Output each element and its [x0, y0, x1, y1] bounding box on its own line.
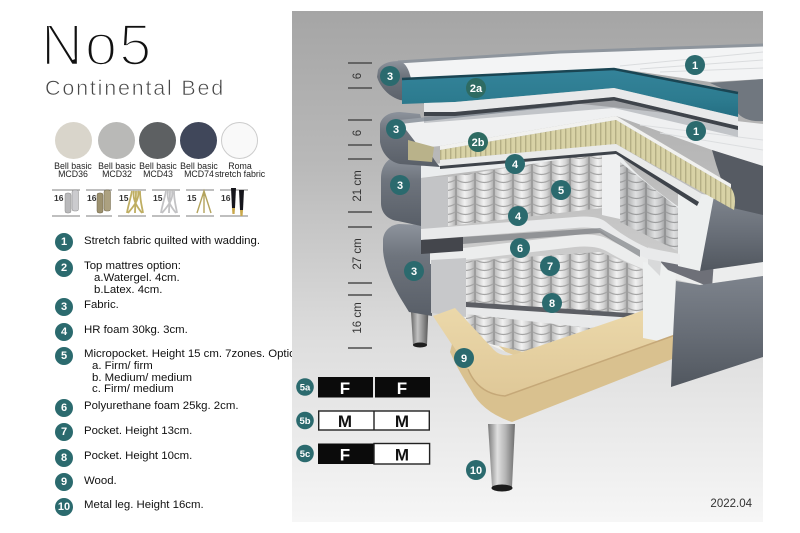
svg-text:3: 3 [411, 266, 417, 278]
svg-text:9: 9 [461, 353, 467, 365]
svg-text:5b: 5b [299, 416, 310, 427]
svg-text:5: 5 [558, 185, 564, 197]
svg-text:3: 3 [387, 71, 393, 83]
svg-text:3: 3 [397, 180, 403, 192]
svg-text:7: 7 [547, 261, 553, 273]
svg-text:F: F [340, 379, 350, 398]
svg-text:5c: 5c [300, 449, 311, 460]
svg-text:8: 8 [549, 298, 555, 310]
svg-text:4: 4 [512, 159, 519, 171]
svg-text:F: F [397, 379, 407, 398]
svg-text:6: 6 [352, 130, 364, 136]
svg-text:F: F [340, 446, 350, 465]
svg-text:M: M [395, 446, 409, 465]
svg-text:M: M [395, 412, 409, 431]
svg-text:4: 4 [515, 211, 522, 223]
svg-text:1: 1 [692, 60, 698, 72]
svg-text:3: 3 [393, 124, 399, 136]
svg-text:27 cm: 27 cm [352, 238, 364, 269]
svg-text:10: 10 [470, 465, 482, 477]
svg-text:6: 6 [352, 73, 364, 79]
svg-text:2a: 2a [470, 83, 483, 95]
svg-text:5a: 5a [300, 383, 311, 394]
svg-text:6: 6 [517, 243, 523, 255]
svg-text:M: M [338, 412, 352, 431]
svg-text:16 cm: 16 cm [352, 302, 364, 333]
svg-text:21 cm: 21 cm [352, 170, 364, 201]
svg-text:1: 1 [693, 126, 699, 138]
svg-text:2b: 2b [472, 137, 485, 149]
svg-text:2022.04: 2022.04 [710, 498, 752, 510]
